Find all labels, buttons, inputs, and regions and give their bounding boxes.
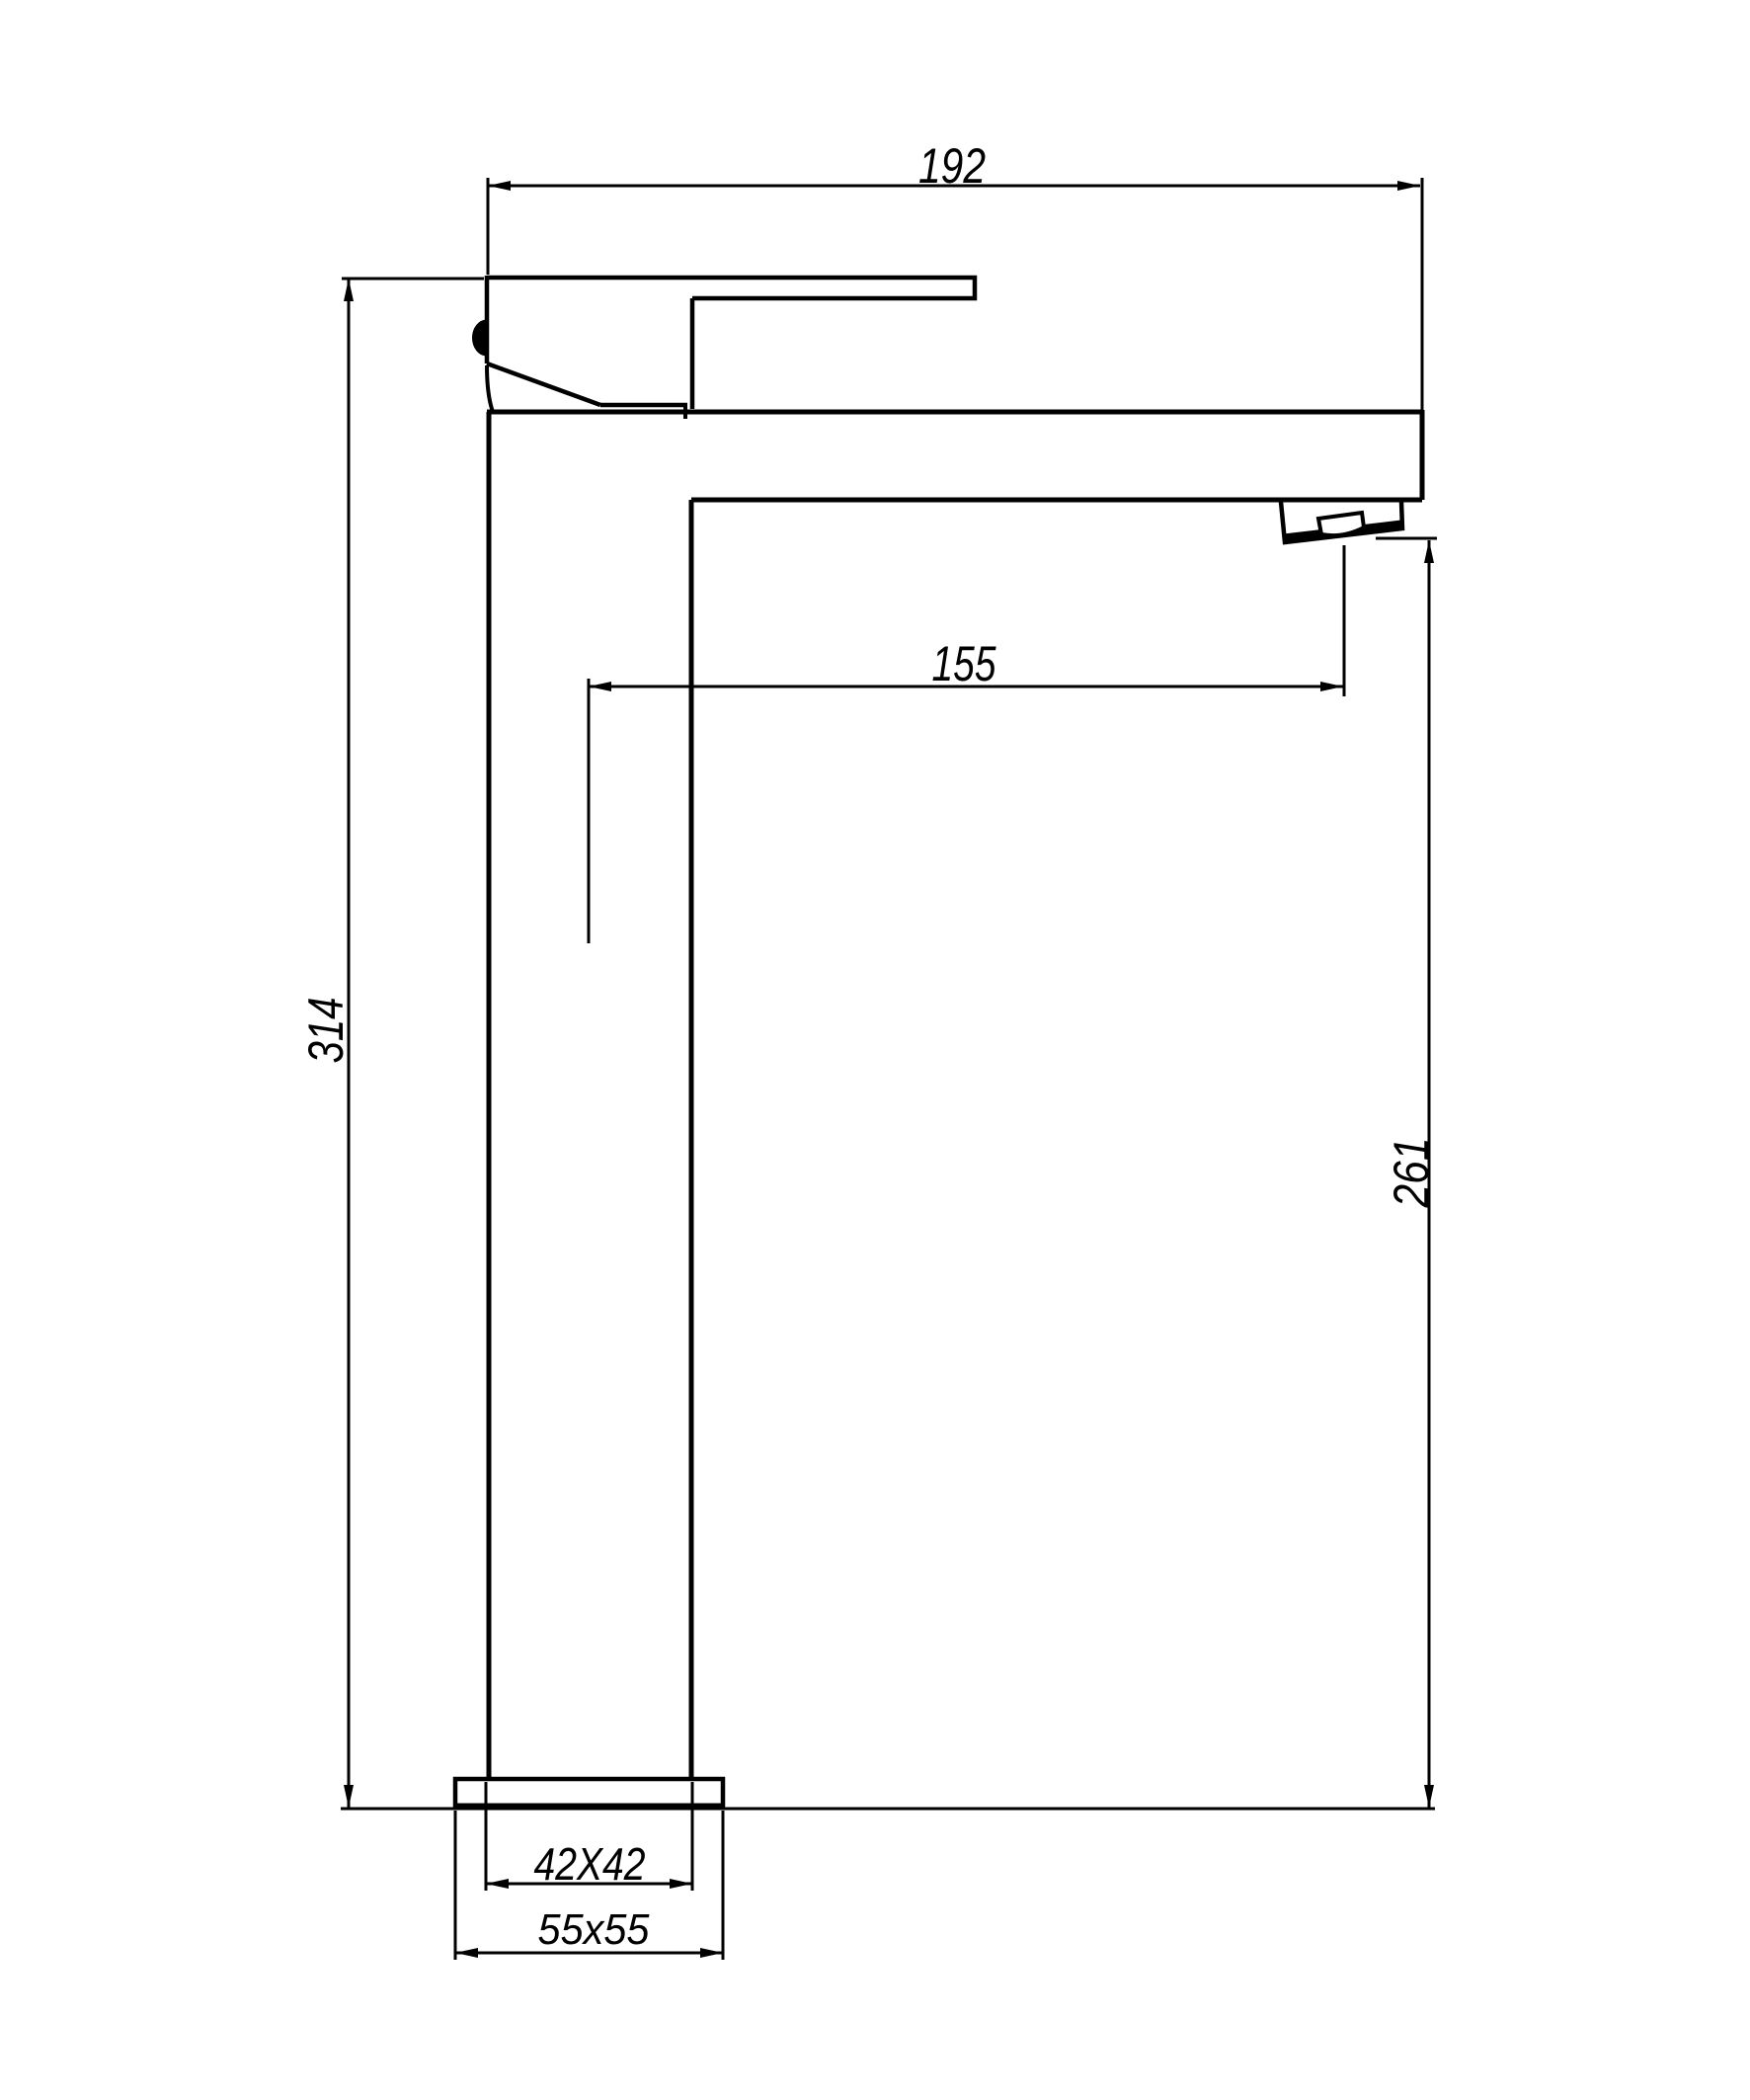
svg-text:261: 261 — [1384, 1138, 1439, 1209]
svg-text:42X42: 42X42 — [534, 1838, 646, 1890]
svg-text:314: 314 — [298, 998, 354, 1064]
svg-text:192: 192 — [918, 138, 986, 194]
svg-text:55x55: 55x55 — [538, 1905, 650, 1954]
svg-text:155: 155 — [932, 636, 996, 691]
